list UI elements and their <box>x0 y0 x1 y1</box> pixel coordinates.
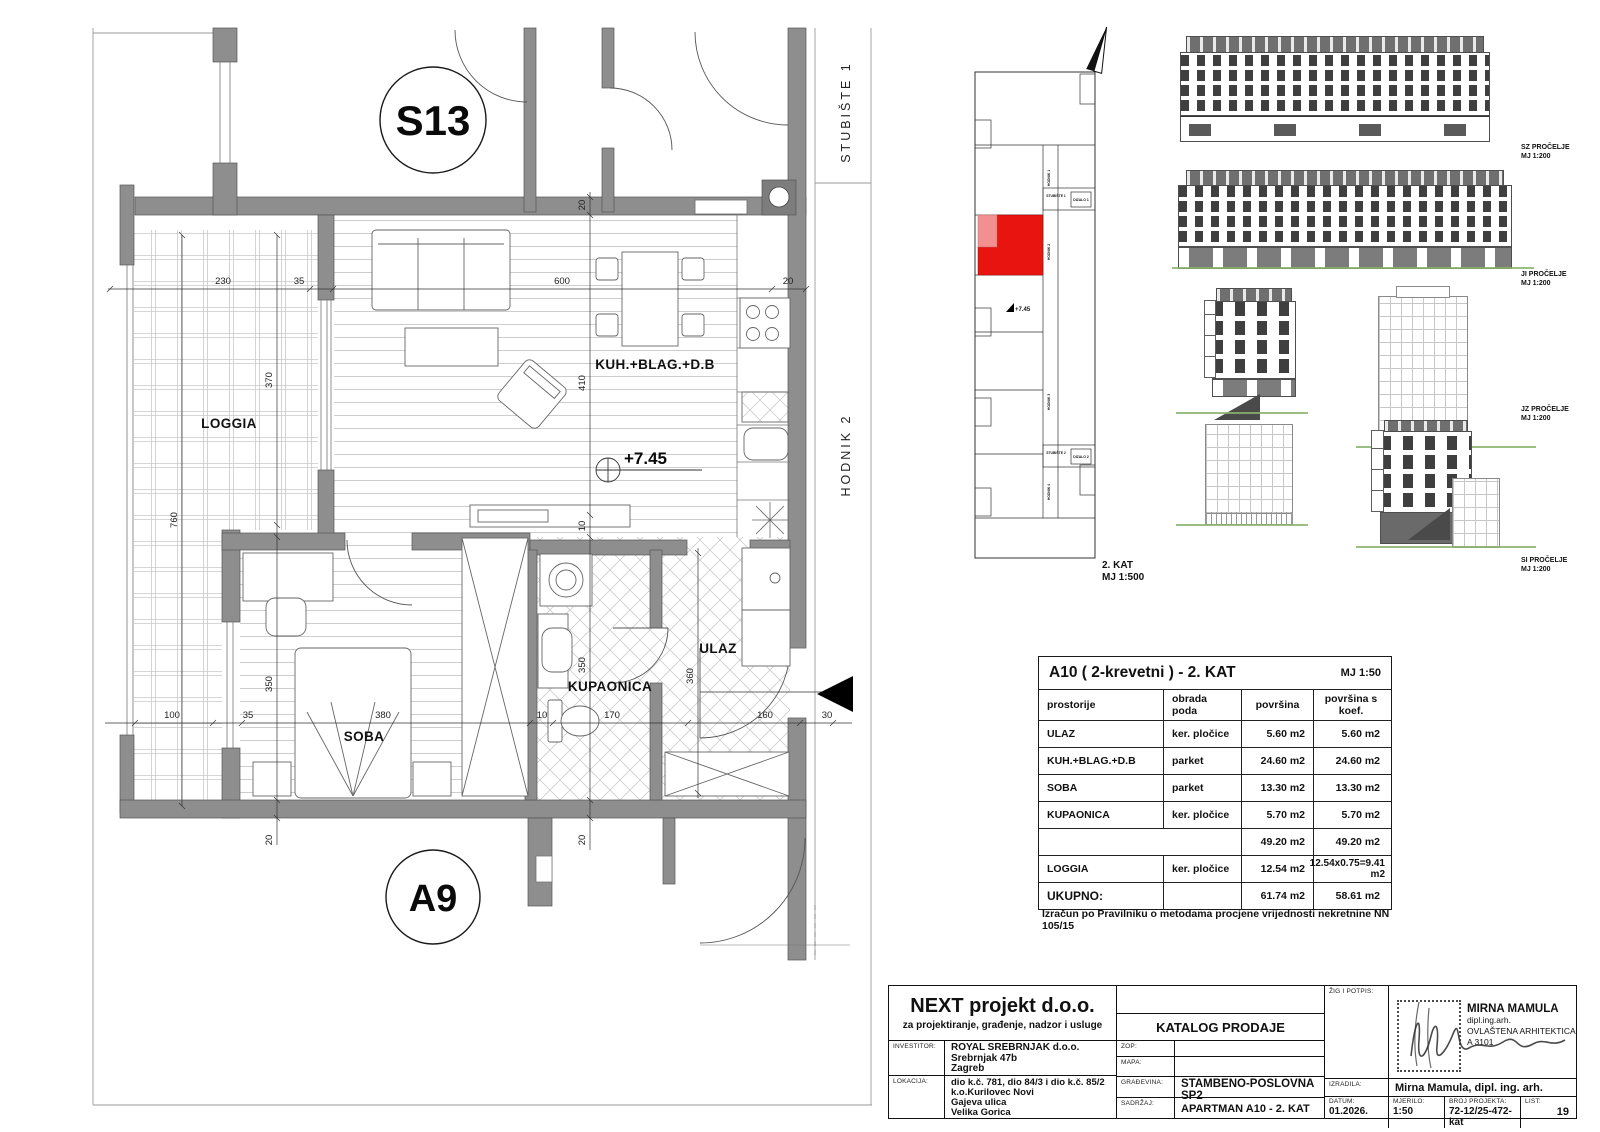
zop-row: ZOP: <box>1117 1040 1324 1056</box>
keyplan-hodnik2: HODNIK 2 <box>1047 244 1051 260</box>
sadrzaj-label: SADRŽAJ: <box>1117 1098 1174 1118</box>
list-value: 19 <box>1525 1106 1573 1118</box>
table-row: KUH.+BLAG.+D.B parket 24.60 m2 24.60 m2 <box>1039 747 1391 774</box>
table-row: ULAZ ker. pločice 5.60 m2 5.60 m2 <box>1039 720 1391 747</box>
elevation-sz <box>1180 36 1490 142</box>
gradjevina-row: GRAĐEVINA: STAMBENO-POSLOVNA SP2 <box>1117 1076 1324 1097</box>
ground-line-1 <box>1172 267 1534 269</box>
keyplan-stubiste2: STUBIŠTE 2 <box>1046 450 1066 455</box>
lokacija-line4: Velika Gorica <box>951 1108 1116 1118</box>
header-obrada: obrada poda <box>1163 690 1241 720</box>
broj-label: BROJ PROJEKTA: <box>1449 1098 1517 1105</box>
table-row: LOGGIA ker. pločice 12.54 m2 12.54x0.75=… <box>1039 855 1391 882</box>
header-prostorije: prostorije <box>1039 699 1163 711</box>
dim-410: 410 <box>577 375 588 391</box>
table-row-subtotal: 49.20 m2 49.20 m2 <box>1039 828 1391 855</box>
sadrzaj-row: SADRŽAJ: APARTMAN A10 - 2. KAT <box>1117 1097 1324 1118</box>
dim-20-botmid: 20 <box>577 835 588 846</box>
elevation-ji <box>1178 170 1512 269</box>
keyplan-caption: 2. KAT MJ 1:500 <box>1102 560 1144 584</box>
dim-35-bot: 35 <box>243 710 254 721</box>
unit-label-a9: A9 <box>409 878 458 920</box>
header-povrsina: površina <box>1241 690 1313 720</box>
cell-area: 13.30 m2 <box>1241 775 1313 801</box>
elevation-si-annex <box>1452 478 1500 548</box>
signature <box>1389 992 1575 1076</box>
cell-area: 24.60 m2 <box>1241 748 1313 774</box>
cell-total-label: UKUPNO: <box>1039 889 1163 903</box>
room-label-bathroom: KUPAONICA <box>568 679 652 694</box>
dim-360: 360 <box>685 668 696 684</box>
cell-floor: ker. pločice <box>1163 721 1241 747</box>
area-table-title: A10 ( 2-krevetni ) - 2. KAT <box>1049 664 1236 682</box>
keyplan-dizalo1: DIZALO 1 <box>1073 198 1089 202</box>
dim-230: 230 <box>215 276 231 287</box>
elevation-jz-penthouse <box>1396 286 1450 298</box>
keyplan-level: +7.45 <box>1015 307 1031 313</box>
cell-area-koef: 5.60 m2 <box>1313 721 1388 747</box>
keyplan-stubiste1: STUBIŠTE 1 <box>1046 193 1066 198</box>
elevation-ji-name: JI PROČELJE <box>1521 270 1581 279</box>
cell-area: 49.20 m2 <box>1241 829 1313 855</box>
cell-area-koef: 5.70 m2 <box>1313 802 1388 828</box>
zop-label: ZOP: <box>1117 1041 1174 1056</box>
dim-350-kupa: 350 <box>577 657 588 673</box>
elevation-label-ji: JI PROČELJE MJ 1:200 <box>1521 270 1581 288</box>
cell-floor: parket <box>1163 748 1241 774</box>
cell-room: LOGGIA <box>1039 863 1163 875</box>
elevation-si-scale: MJ 1:200 <box>1521 565 1581 574</box>
mjerilo-cell: MJERILO: 1:50 <box>1388 1097 1444 1128</box>
izradila-row: IZRADILA: Mirna Mamula, dipl. ing. arh. <box>1325 1078 1576 1096</box>
elevation-label-jz: JZ PROČELJE MJ 1:200 <box>1521 405 1581 423</box>
investitor-line1: ROYAL SREBRNJAK d.o.o. <box>951 1043 1116 1054</box>
titleblock-middle: KATALOG PRODAJE ZOP: MAPA: GRAĐEVINA: ST… <box>1116 986 1324 1118</box>
level-value: +7.45 <box>624 449 667 468</box>
zop-value <box>1174 1041 1324 1056</box>
titleblock-left: NEXT projekt d.o.o. za projektiranje, gr… <box>889 986 1116 1118</box>
cell-total-area-koef: 58.61 m2 <box>1313 883 1388 909</box>
corridor-label-stubiste1: STUBIŠTE 1 <box>838 61 853 163</box>
corridor-label-hodnik2: HODNIK 2 <box>839 413 853 496</box>
keyplan-dizalo2: DIZALO 2 <box>1073 455 1089 459</box>
unit-label-s13: S13 <box>396 97 471 144</box>
keyplan-hodnik4: HODNIK 4 <box>1047 484 1051 500</box>
cell-room: KUH.+BLAG.+D.B <box>1039 755 1163 767</box>
elevation-jz-stair <box>1214 394 1260 420</box>
dim-600: 600 <box>554 276 570 287</box>
datum-label: DATUM: <box>1329 1098 1385 1105</box>
datum-value: 01.2026. <box>1329 1106 1385 1117</box>
company-subtitle: za projektiranje, građenje, nadzor i usl… <box>903 1020 1103 1031</box>
cell-area-koef: 13.30 m2 <box>1313 775 1388 801</box>
cell-area-koef: 12.54x0.75=9.41 m2 <box>1313 856 1388 882</box>
room-label-entry: ULAZ <box>699 641 737 656</box>
dim-10-bot: 10 <box>537 710 548 721</box>
table-note: Izračun po Pravilniku o metodama procjen… <box>1042 908 1412 932</box>
keyplan-caption-floor: 2. KAT <box>1102 560 1144 572</box>
north-arrow-icon <box>1078 22 1122 78</box>
dim-350-soba: 350 <box>264 676 275 692</box>
empty-cell <box>1117 986 1324 1013</box>
elevation-jz-name: JZ PROČELJE <box>1521 405 1581 414</box>
mapa-value <box>1174 1057 1324 1076</box>
cell-floor: ker. pločice <box>1163 802 1241 828</box>
room-label-kitchen: KUH.+BLAG.+D.B <box>595 357 715 372</box>
keyplan-caption-scale: MJ 1:500 <box>1102 572 1144 584</box>
zig-label: ŽIG I POTPIS: <box>1325 986 1388 1078</box>
elevation-si-outline <box>1205 424 1293 514</box>
mapa-label: MAPA: <box>1117 1057 1174 1076</box>
elevation-label-sz: SZ PROČELJE MJ 1:200 <box>1521 143 1581 161</box>
dim-160: 160 <box>757 710 773 721</box>
broj-value: 72-12/25-472-kat <box>1449 1106 1517 1128</box>
elevation-jz-scale: MJ 1:200 <box>1521 414 1581 423</box>
investitor-label: INVESTITOR: <box>889 1041 944 1075</box>
area-table-scale: MJ 1:50 <box>1341 667 1381 679</box>
table-row: SOBA parket 13.30 m2 13.30 m2 <box>1039 774 1391 801</box>
mapa-row: MAPA: <box>1117 1056 1324 1076</box>
cell-room: ULAZ <box>1039 728 1163 740</box>
dim-100: 100 <box>164 710 180 721</box>
izradila-label: IZRADILA: <box>1325 1079 1388 1096</box>
dim-380: 380 <box>375 710 391 721</box>
elevation-sz-name: SZ PROČELJE <box>1521 143 1581 152</box>
company-cell: NEXT projekt d.o.o. za projektiranje, gr… <box>889 986 1116 1040</box>
table-row: KUPAONICA ker. pločice 5.70 m2 5.70 m2 <box>1039 801 1391 828</box>
cell-room: SOBA <box>1039 782 1163 794</box>
dim-35-top: 35 <box>294 276 305 287</box>
dim-20-wall: 20 <box>577 200 588 211</box>
investitor-line3: Zagreb <box>951 1064 1116 1075</box>
drawing-sheet: 230 35 600 20 20 370 760 410 10 350 350 … <box>0 0 1600 1132</box>
dim-20-botleft: 20 <box>264 835 275 846</box>
bottom-row: DATUM: 01.2026. MJERILO: 1:50 BROJ PROJE… <box>1325 1096 1576 1118</box>
sadrzaj-value: APARTMAN A10 - 2. KAT <box>1174 1098 1324 1118</box>
title-block: NEXT projekt d.o.o. za projektiranje, gr… <box>888 985 1577 1119</box>
table-row-total: UKUPNO: 61.74 m2 58.61 m2 <box>1039 882 1391 909</box>
room-label-bedroom: SOBA <box>344 729 385 744</box>
cell-floor: ker. pločice <box>1163 856 1241 882</box>
elevation-sz-scale: MJ 1:200 <box>1521 152 1581 161</box>
elevation-ji-scale: MJ 1:200 <box>1521 279 1581 288</box>
lokacija-row: LOKACIJA: dio k.č. 781, dio 84/3 i dio k… <box>889 1075 1116 1116</box>
keyplan-drawing: HODNIK 1 STUBIŠTE 1 DIZALO 1 HODNIK 2 HO… <box>948 60 1148 560</box>
keyplan-hodnik3: HODNIK 3 <box>1047 394 1051 410</box>
cell-area-koef: 24.60 m2 <box>1313 748 1388 774</box>
keyplan-hodnik1: HODNIK 1 <box>1047 170 1051 186</box>
company-name: NEXT projekt d.o.o. <box>910 995 1094 1018</box>
cell-floor <box>1163 883 1241 909</box>
ground-line-5 <box>1176 524 1308 526</box>
elevation-si-balconies <box>1371 430 1384 512</box>
cell-area: 5.60 m2 <box>1241 721 1313 747</box>
entrance-arrow-icon <box>817 676 853 712</box>
dim-170: 170 <box>604 710 620 721</box>
elevation-si-name: SI PROČELJE <box>1521 556 1581 565</box>
cell-floor: parket <box>1163 775 1241 801</box>
investitor-row: INVESTITOR: ROYAL SREBRNJAK d.o.o. Srebr… <box>889 1040 1116 1075</box>
broj-projekta-cell: BROJ PROJEKTA: 72-12/25-472-kat <box>1444 1097 1520 1128</box>
ground-line-2 <box>1176 412 1308 414</box>
shaft-symbol <box>769 187 789 207</box>
list-label: LIST: <box>1525 1098 1573 1105</box>
katalog-title: KATALOG PRODAJE <box>1117 1013 1324 1040</box>
dim-30: 30 <box>822 710 833 721</box>
dim-370: 370 <box>264 372 275 388</box>
cell-total-area: 61.74 m2 <box>1241 883 1313 909</box>
dim-20-top: 20 <box>783 276 794 287</box>
ground-line-4 <box>1356 546 1536 548</box>
stamp-area: ŽIG I POTPIS: MIRNA MAMULA dipl.ing.arh.… <box>1325 986 1576 1078</box>
keyplan-highlight-loggia <box>978 215 997 247</box>
header-povrsina-koef: površina s koef. <box>1313 690 1388 720</box>
lokacija-label: LOKACIJA: <box>889 1076 944 1118</box>
datum-cell: DATUM: 01.2026. <box>1325 1097 1388 1128</box>
mjerilo-label: MJERILO: <box>1393 1098 1441 1105</box>
room-label-loggia: LOGGIA <box>201 416 257 431</box>
cell-area: 12.54 m2 <box>1241 856 1313 882</box>
dim-10-mid: 10 <box>577 521 588 532</box>
titleblock-right: ŽIG I POTPIS: MIRNA MAMULA dipl.ing.arh.… <box>1324 986 1576 1118</box>
izradila-value: Mirna Mamula, dipl. ing. arh. <box>1388 1079 1576 1096</box>
table-header-row: prostorije obrada poda površina površina… <box>1039 689 1391 720</box>
area-table-title-row: A10 ( 2-krevetni ) - 2. KAT MJ 1:50 <box>1039 657 1391 689</box>
cell-area-koef: 49.20 m2 <box>1313 829 1388 855</box>
list-cell: LIST: 19 <box>1520 1097 1576 1128</box>
mjerilo-value: 1:50 <box>1393 1106 1441 1117</box>
cell-room: KUPAONICA <box>1039 809 1163 821</box>
elevation-jz-building <box>1212 288 1296 397</box>
cell-area: 5.70 m2 <box>1241 802 1313 828</box>
elevation-label-si: SI PROČELJE MJ 1:200 <box>1521 556 1581 574</box>
area-table: A10 ( 2-krevetni ) - 2. KAT MJ 1:50 pros… <box>1038 656 1392 910</box>
elevation-jz-balconies <box>1204 300 1216 378</box>
dim-760: 760 <box>169 512 180 528</box>
floor-plan-drawing: 230 35 600 20 20 370 760 410 10 350 350 … <box>0 0 880 1132</box>
